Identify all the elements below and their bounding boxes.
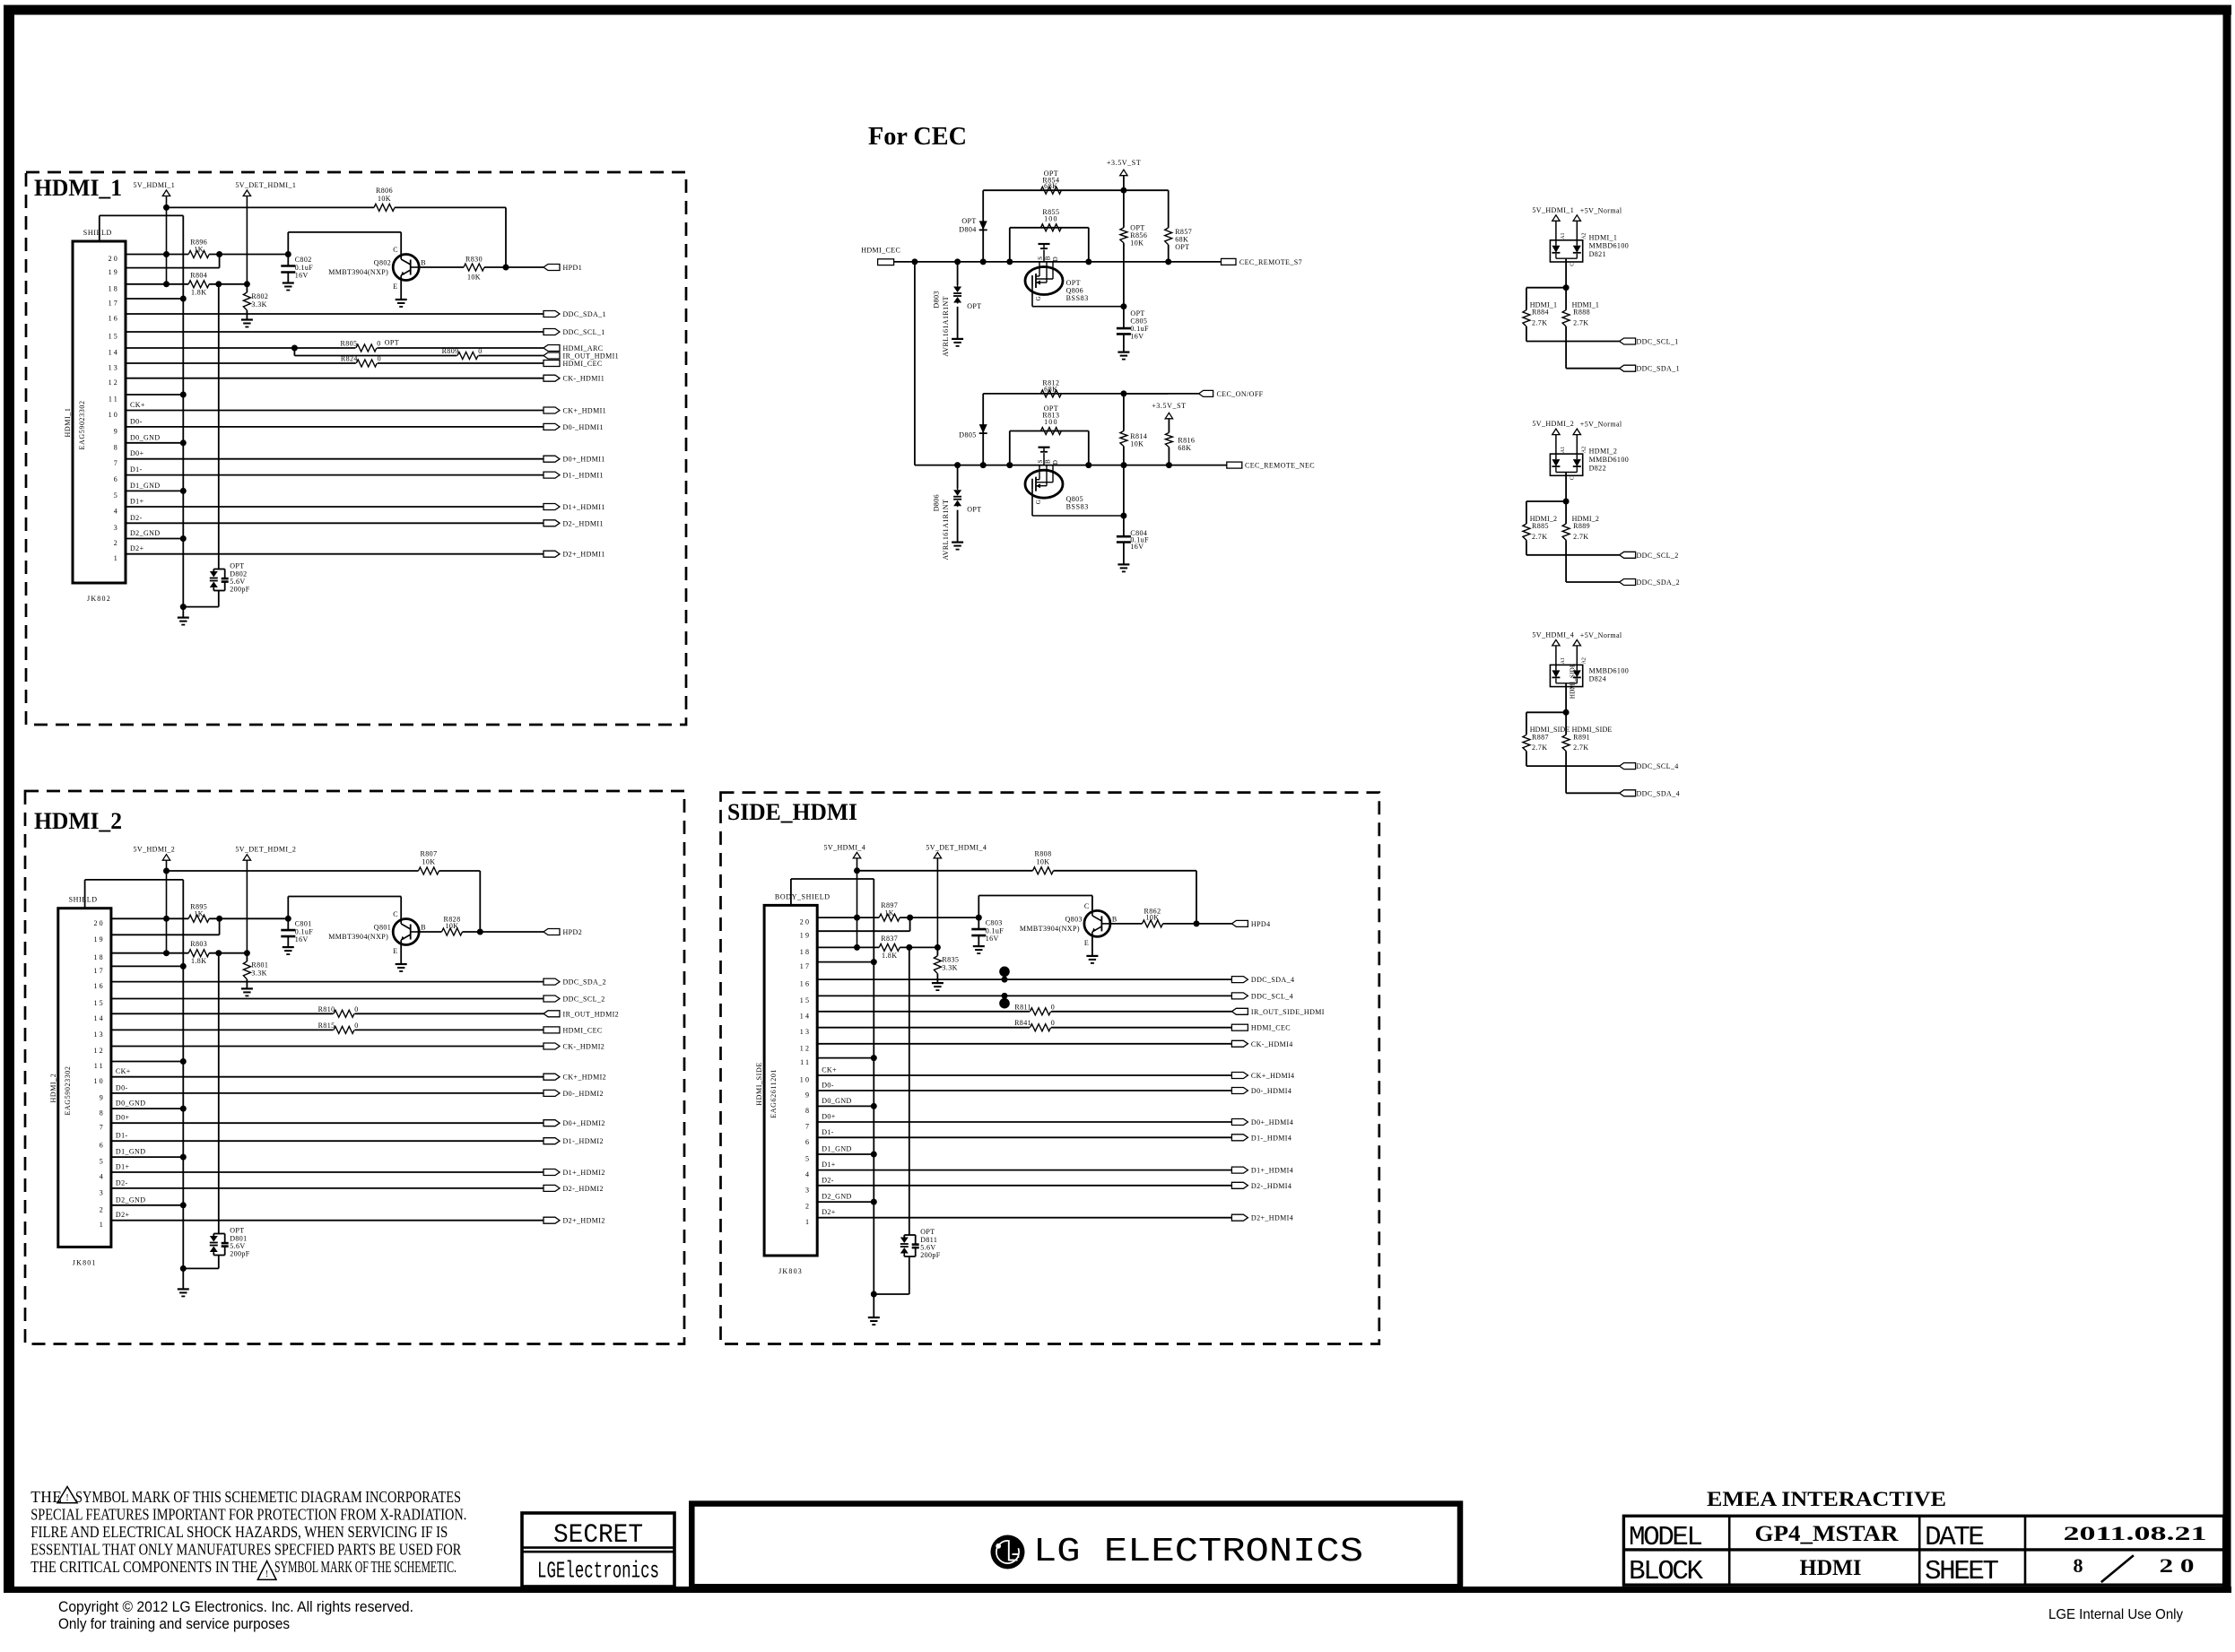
svg-text:5V_DET_HDMI_2: 5V_DET_HDMI_2 xyxy=(235,846,296,854)
svg-text:7: 7 xyxy=(100,1124,105,1132)
svg-text:4: 4 xyxy=(100,1173,105,1181)
svg-text:CEC_ON/OFF: CEC_ON/OFF xyxy=(1217,390,1264,398)
svg-text:D2-: D2- xyxy=(130,514,143,522)
svg-text:C803: C803 xyxy=(986,919,1003,927)
svg-text:18: 18 xyxy=(93,953,104,961)
svg-text:JK803: JK803 xyxy=(778,1267,803,1275)
svg-text:6: 6 xyxy=(805,1138,811,1146)
svg-text:EAG62611201: EAG62611201 xyxy=(770,1069,778,1118)
svg-text:3.3K: 3.3K xyxy=(251,300,266,309)
svg-text:0: 0 xyxy=(1051,1019,1055,1027)
svg-text:D803: D803 xyxy=(932,291,940,308)
svg-text:17: 17 xyxy=(109,300,119,308)
svg-text:FILRE AND ELECTRICAL SHOCK HAZ: FILRE AND ELECTRICAL SHOCK HAZARDS, WHEN… xyxy=(30,1523,448,1541)
svg-text:1K: 1K xyxy=(884,909,894,917)
svg-text:5V_HDMI_1: 5V_HDMI_1 xyxy=(134,181,176,189)
svg-text:EMEA INTERACTIVE: EMEA INTERACTIVE xyxy=(1707,1488,1946,1510)
svg-text:Q802: Q802 xyxy=(374,259,391,267)
svg-text:10K: 10K xyxy=(1146,914,1160,922)
svg-text:ESSENTIAL THAT ONLY MANUFATURE: ESSENTIAL THAT ONLY MANUFATURES SPECFIED… xyxy=(30,1541,461,1559)
svg-text:MMBD6100: MMBD6100 xyxy=(1589,666,1630,674)
svg-text:0: 0 xyxy=(354,1005,358,1013)
svg-text:D0+: D0+ xyxy=(130,449,144,457)
svg-text:R891: R891 xyxy=(1573,733,1590,741)
svg-text:19: 19 xyxy=(93,935,104,943)
svg-text:100: 100 xyxy=(1044,214,1058,222)
svg-text:D2_GND: D2_GND xyxy=(130,529,161,537)
svg-text:MMBD6100: MMBD6100 xyxy=(1589,456,1630,464)
svg-text:MMBD6100: MMBD6100 xyxy=(1589,242,1630,250)
svg-text:D1+: D1+ xyxy=(116,1163,130,1171)
svg-text:D1-: D1- xyxy=(116,1132,128,1140)
svg-text:MODEL: MODEL xyxy=(1629,1522,1701,1553)
svg-text:R888: R888 xyxy=(1573,309,1590,317)
svg-text:5V_DET_HDMI_1: 5V_DET_HDMI_1 xyxy=(235,181,296,189)
svg-text:OPT: OPT xyxy=(385,339,399,347)
svg-text:D811: D811 xyxy=(920,1236,937,1244)
svg-text:HPD2: HPD2 xyxy=(563,928,583,936)
svg-text:LG ELECTRONICS: LG ELECTRONICS xyxy=(1033,1533,1363,1571)
svg-text:5.6V: 5.6V xyxy=(230,1242,245,1250)
svg-text:DDC_SDA_2: DDC_SDA_2 xyxy=(1637,578,1681,587)
svg-text:D1-: D1- xyxy=(130,465,143,474)
svg-text:100: 100 xyxy=(1044,418,1058,426)
svg-text:D0-_HDMI2: D0-_HDMI2 xyxy=(563,1090,604,1098)
svg-text:CK+_HDMI1: CK+_HDMI1 xyxy=(563,407,607,415)
svg-text:1.8K: 1.8K xyxy=(882,952,897,960)
svg-text:G: G xyxy=(1035,296,1042,300)
svg-text:E: E xyxy=(1084,939,1089,947)
svg-text:5V_HDMI_2: 5V_HDMI_2 xyxy=(1532,420,1574,428)
svg-text:2.7K: 2.7K xyxy=(1532,319,1547,327)
svg-text:R885: R885 xyxy=(1532,522,1549,530)
svg-text:16: 16 xyxy=(800,980,811,988)
svg-text:5V_DET_HDMI_4: 5V_DET_HDMI_4 xyxy=(926,843,987,851)
svg-text:10: 10 xyxy=(93,1077,104,1085)
svg-text:3.3K: 3.3K xyxy=(251,969,266,978)
svg-text:D0-: D0- xyxy=(822,1082,834,1090)
svg-text:DDC_SDA_4: DDC_SDA_4 xyxy=(1637,789,1681,797)
svg-text:5V_HDMI_4: 5V_HDMI_4 xyxy=(1532,630,1574,639)
svg-text:+5V_Normal: +5V_Normal xyxy=(1580,421,1622,429)
svg-text:20: 20 xyxy=(93,919,104,927)
svg-text:EAG59023302: EAG59023302 xyxy=(64,1066,72,1116)
svg-text:R811: R811 xyxy=(1014,1003,1031,1011)
svg-text:9: 9 xyxy=(114,427,119,435)
svg-text:BODY_SHIELD: BODY_SHIELD xyxy=(775,892,831,900)
svg-text:D2-: D2- xyxy=(116,1178,128,1187)
svg-text:R824: R824 xyxy=(341,355,358,363)
svg-text:6: 6 xyxy=(100,1142,105,1150)
svg-text:2 0: 2 0 xyxy=(2160,1554,2195,1577)
svg-text:HDMI_CEC: HDMI_CEC xyxy=(861,246,900,254)
svg-text:13: 13 xyxy=(93,1030,104,1039)
svg-text:1: 1 xyxy=(805,1218,811,1226)
svg-text:CK+: CK+ xyxy=(822,1066,837,1074)
svg-text:5: 5 xyxy=(805,1155,811,1163)
svg-text:D1_GND: D1_GND xyxy=(822,1145,852,1153)
svg-text:D1-_HDMI1: D1-_HDMI1 xyxy=(563,472,604,480)
svg-text:19: 19 xyxy=(109,268,119,276)
svg-text:1: 1 xyxy=(100,1221,105,1229)
svg-text:16V: 16V xyxy=(295,935,309,943)
svg-text:R807: R807 xyxy=(421,850,438,858)
svg-text:R805: R805 xyxy=(340,340,357,348)
svg-text:R802: R802 xyxy=(251,292,268,300)
svg-text:2.7K: 2.7K xyxy=(1573,743,1588,752)
svg-text:5V_HDMI_4: 5V_HDMI_4 xyxy=(824,843,866,851)
svg-text:2.7K: 2.7K xyxy=(1573,319,1588,327)
svg-text:6: 6 xyxy=(114,475,119,483)
svg-text:+3.5V_ST: +3.5V_ST xyxy=(1152,402,1186,410)
svg-text:OPT: OPT xyxy=(967,302,981,310)
svg-text:4: 4 xyxy=(805,1170,811,1178)
svg-text:S: S xyxy=(1037,256,1044,260)
svg-text:D0_GND: D0_GND xyxy=(116,1100,146,1108)
svg-text:JK801: JK801 xyxy=(73,1258,97,1266)
svg-text:For CEC: For CEC xyxy=(868,123,967,151)
svg-text:2.7K: 2.7K xyxy=(1573,533,1588,541)
svg-text:68K: 68K xyxy=(1044,182,1058,190)
svg-text:D801: D801 xyxy=(230,1234,247,1242)
svg-text:SHEET: SHEET xyxy=(1925,1556,1998,1587)
svg-text:D2+_HDMI1: D2+_HDMI1 xyxy=(563,551,605,559)
svg-text:D0+_HDMI1: D0+_HDMI1 xyxy=(563,456,605,464)
svg-text:D0-: D0- xyxy=(116,1083,128,1091)
svg-text:HDMI_SIDE: HDMI_SIDE xyxy=(755,1062,763,1106)
svg-text:MMBT3904(NXP): MMBT3904(NXP) xyxy=(1020,925,1080,933)
svg-text:SIDE_HDMI: SIDE_HDMI xyxy=(727,799,857,825)
svg-text:D0-_HDMI1: D0-_HDMI1 xyxy=(563,423,604,431)
svg-text:R884: R884 xyxy=(1532,309,1549,317)
svg-text:0: 0 xyxy=(377,340,380,348)
svg-text:0: 0 xyxy=(1051,1003,1055,1011)
svg-text:13: 13 xyxy=(800,1028,811,1036)
svg-text:2011.08.21: 2011.08.21 xyxy=(2064,1522,2207,1544)
svg-text:HDMI_1: HDMI_1 xyxy=(1589,233,1618,241)
svg-text:LGE Internal Use Only: LGE Internal Use Only xyxy=(2048,1607,2183,1622)
svg-text:200pF: 200pF xyxy=(230,1250,250,1258)
svg-text:SHIELD: SHIELD xyxy=(83,229,112,237)
svg-text:BLOCK: BLOCK xyxy=(1629,1556,1703,1587)
svg-text:D: D xyxy=(1052,460,1059,465)
svg-text:10K: 10K xyxy=(422,858,436,866)
svg-text:10K: 10K xyxy=(1130,239,1144,248)
svg-text:R803: R803 xyxy=(190,940,207,948)
svg-text:R808: R808 xyxy=(1035,849,1052,857)
svg-text:DATE: DATE xyxy=(1925,1522,1983,1553)
svg-text:R889: R889 xyxy=(1573,522,1590,530)
svg-text:16: 16 xyxy=(109,315,119,323)
svg-text:13: 13 xyxy=(109,364,119,372)
svg-text:15: 15 xyxy=(800,996,811,1004)
svg-text:5V_HDMI_2: 5V_HDMI_2 xyxy=(134,846,176,854)
svg-text:C: C xyxy=(1084,902,1090,910)
svg-text:9: 9 xyxy=(100,1093,105,1101)
svg-text:C: C xyxy=(1570,476,1576,480)
svg-text:BSS83: BSS83 xyxy=(1066,502,1089,510)
svg-text:C: C xyxy=(393,246,398,254)
svg-text:D0+: D0+ xyxy=(822,1113,836,1121)
svg-text:HDMI_CEC: HDMI_CEC xyxy=(563,1026,603,1034)
svg-text:D0_GND: D0_GND xyxy=(822,1097,852,1105)
svg-text:DDC_SDA_1: DDC_SDA_1 xyxy=(1637,365,1681,373)
svg-text:D2-: D2- xyxy=(822,1176,834,1184)
svg-text:15: 15 xyxy=(93,999,104,1007)
svg-text:SYMBOL MARK OF THE SCHEMETIC.: SYMBOL MARK OF THE SCHEMETIC. xyxy=(274,1558,457,1576)
svg-text:S: S xyxy=(1037,460,1044,464)
svg-text:7: 7 xyxy=(114,459,119,467)
svg-text:2: 2 xyxy=(114,539,119,547)
svg-text:8: 8 xyxy=(100,1109,105,1117)
svg-text:HPD4: HPD4 xyxy=(1251,920,1271,928)
svg-text:E: E xyxy=(393,947,397,955)
svg-text:OPT: OPT xyxy=(1175,243,1189,251)
svg-text:MMBT3904(NXP): MMBT3904(NXP) xyxy=(328,933,388,941)
svg-text:D804: D804 xyxy=(959,226,976,234)
svg-text:R835: R835 xyxy=(942,955,959,963)
svg-text:D1+_HDMI1: D1+_HDMI1 xyxy=(563,503,605,511)
svg-text:10K: 10K xyxy=(1130,439,1144,448)
svg-text:CEC_REMOTE_NEC: CEC_REMOTE_NEC xyxy=(1245,462,1315,470)
svg-text:R806: R806 xyxy=(376,187,393,195)
svg-text:IR_OUT_HDMI2: IR_OUT_HDMI2 xyxy=(563,1010,620,1018)
svg-text:11: 11 xyxy=(800,1058,811,1066)
svg-text:D802: D802 xyxy=(230,570,247,578)
svg-text:B: B xyxy=(1045,256,1052,260)
svg-text:D822: D822 xyxy=(1589,464,1606,472)
svg-text:D0-_HDMI4: D0-_HDMI4 xyxy=(1251,1087,1291,1095)
svg-text:D2+: D2+ xyxy=(116,1211,130,1219)
svg-text:16V: 16V xyxy=(1130,332,1144,340)
svg-text:DDC_SCL_1: DDC_SCL_1 xyxy=(563,328,605,336)
svg-text:1: 1 xyxy=(114,554,119,562)
svg-text:+3.5V_ST: +3.5V_ST xyxy=(1107,159,1141,167)
svg-text:0: 0 xyxy=(478,347,482,355)
svg-text:HDMI_1: HDMI_1 xyxy=(64,408,72,438)
svg-text:DDC_SCL_4: DDC_SCL_4 xyxy=(1251,992,1293,1000)
svg-text:DDC_SCL_4: DDC_SCL_4 xyxy=(1637,762,1679,770)
svg-text:BSS83: BSS83 xyxy=(1066,294,1089,302)
svg-text:3: 3 xyxy=(114,524,119,532)
svg-text:5: 5 xyxy=(100,1158,105,1166)
svg-text:CK-_HDMI2: CK-_HDMI2 xyxy=(563,1043,605,1051)
svg-text:!: ! xyxy=(265,1569,268,1579)
svg-text:R841: R841 xyxy=(1014,1019,1031,1027)
svg-text:+5V_Normal: +5V_Normal xyxy=(1580,631,1622,639)
svg-text:16V: 16V xyxy=(986,935,999,943)
svg-text:D1_GND: D1_GND xyxy=(130,482,161,490)
svg-text:AVRL161A1R1NT: AVRL161A1R1NT xyxy=(942,500,950,561)
svg-text:R810: R810 xyxy=(318,1005,335,1013)
svg-text:10K: 10K xyxy=(1037,857,1050,865)
svg-text:HDMI: HDMI xyxy=(1800,1556,1862,1580)
svg-text:10K: 10K xyxy=(446,922,459,930)
svg-text:LGElectronics: LGElectronics xyxy=(537,1558,659,1585)
svg-text:D2+: D2+ xyxy=(130,544,144,552)
svg-text:CK+_HDMI4: CK+_HDMI4 xyxy=(1251,1072,1295,1080)
svg-text:R809: R809 xyxy=(442,347,459,355)
svg-text:17: 17 xyxy=(800,962,811,970)
svg-text:200pF: 200pF xyxy=(920,1251,941,1259)
svg-text:A1: A1 xyxy=(1561,447,1566,453)
svg-text:HDMI_CEC: HDMI_CEC xyxy=(563,360,603,368)
svg-text:D2_GND: D2_GND xyxy=(116,1196,146,1204)
svg-text:4: 4 xyxy=(114,508,119,516)
svg-text:D0+_HDMI4: D0+_HDMI4 xyxy=(1251,1118,1293,1126)
svg-text:D0-: D0- xyxy=(130,417,143,425)
svg-text:12: 12 xyxy=(109,378,119,387)
svg-text:14: 14 xyxy=(800,1012,811,1020)
svg-text:GP4_MSTAR: GP4_MSTAR xyxy=(1755,1522,1900,1546)
svg-text:CK-_HDMI1: CK-_HDMI1 xyxy=(563,375,605,383)
svg-text:11: 11 xyxy=(94,1062,105,1070)
svg-text:DDC_SDA_1: DDC_SDA_1 xyxy=(563,310,607,318)
svg-text:16: 16 xyxy=(93,982,104,990)
svg-text:B: B xyxy=(421,259,426,267)
svg-text:3: 3 xyxy=(100,1188,105,1196)
svg-text:DDC_SCL_2: DDC_SCL_2 xyxy=(1637,552,1679,560)
svg-text:D1+: D1+ xyxy=(130,498,144,506)
svg-text:Q803: Q803 xyxy=(1065,915,1083,923)
svg-text:DDC_SDA_4: DDC_SDA_4 xyxy=(1251,976,1295,984)
svg-text:SPECIAL FEATURES IMPORTANT FOR: SPECIAL FEATURES IMPORTANT FOR PROTECTIO… xyxy=(30,1506,466,1524)
svg-text:D2-_HDMI2: D2-_HDMI2 xyxy=(563,1185,604,1193)
svg-text:R830: R830 xyxy=(465,256,483,264)
svg-text:C802: C802 xyxy=(295,256,312,264)
svg-text:HDMI_CEC: HDMI_CEC xyxy=(1251,1024,1291,1032)
svg-text:CK+: CK+ xyxy=(116,1067,131,1075)
svg-text:11: 11 xyxy=(109,396,119,404)
svg-text:D0_GND: D0_GND xyxy=(130,433,161,441)
svg-text:D1+: D1+ xyxy=(822,1161,836,1169)
svg-text:EAG59023302: EAG59023302 xyxy=(78,400,86,449)
svg-text:D1-_HDMI2: D1-_HDMI2 xyxy=(563,1137,604,1145)
svg-text:E: E xyxy=(393,283,397,291)
svg-text:D: D xyxy=(1052,256,1059,261)
svg-text:D0+: D0+ xyxy=(116,1114,130,1122)
svg-text:1K: 1K xyxy=(194,910,204,918)
svg-text:A2: A2 xyxy=(1582,447,1587,453)
svg-text:Q801: Q801 xyxy=(374,924,391,932)
svg-text:5.6V: 5.6V xyxy=(230,578,245,586)
svg-text:B: B xyxy=(1045,459,1052,464)
svg-text:3: 3 xyxy=(805,1186,811,1194)
svg-text:D2-_HDMI4: D2-_HDMI4 xyxy=(1251,1182,1291,1190)
svg-text:D2+_HDMI4: D2+_HDMI4 xyxy=(1251,1214,1293,1222)
svg-text:HDMI_2: HDMI_2 xyxy=(1589,448,1618,456)
svg-text:D0+_HDMI2: D0+_HDMI2 xyxy=(563,1119,605,1127)
svg-text:HDMI_2: HDMI_2 xyxy=(34,808,122,834)
svg-text:OPT: OPT xyxy=(961,217,976,225)
svg-text:D2_GND: D2_GND xyxy=(822,1193,852,1201)
svg-text:D806: D806 xyxy=(932,494,940,511)
svg-text:Copyright © 2012 LG Electronic: Copyright © 2012 LG Electronics. Inc. Al… xyxy=(58,1599,413,1615)
svg-text:18: 18 xyxy=(109,284,119,292)
svg-text:DDC_SCL_2: DDC_SCL_2 xyxy=(563,996,605,1004)
svg-text:D2-_HDMI1: D2-_HDMI1 xyxy=(563,519,604,527)
svg-text:D821: D821 xyxy=(1589,250,1606,258)
svg-text:THE CRITICAL COMPONENTS IN THE: THE CRITICAL COMPONENTS IN THE xyxy=(30,1558,257,1576)
svg-text:1.8K: 1.8K xyxy=(191,957,206,965)
svg-text:10: 10 xyxy=(800,1076,811,1084)
svg-text:R887: R887 xyxy=(1532,733,1549,741)
svg-text:R815: R815 xyxy=(318,1022,335,1030)
svg-text:HDMI_2: HDMI_2 xyxy=(49,1074,57,1103)
svg-text:8: 8 xyxy=(805,1107,811,1115)
svg-text:+5V_Normal: +5V_Normal xyxy=(1580,206,1622,214)
svg-text:JK802: JK802 xyxy=(87,595,111,603)
svg-text:CK-_HDMI4: CK-_HDMI4 xyxy=(1251,1040,1293,1048)
svg-text:20: 20 xyxy=(800,918,811,926)
svg-text:C: C xyxy=(393,910,398,918)
svg-text:D805: D805 xyxy=(959,431,976,439)
svg-text:14: 14 xyxy=(109,349,119,357)
svg-text:17: 17 xyxy=(93,967,104,975)
svg-text:MMBT3904(NXP): MMBT3904(NXP) xyxy=(328,268,388,276)
svg-text:1.8K: 1.8K xyxy=(191,288,206,296)
svg-text:7: 7 xyxy=(805,1123,811,1131)
svg-text:!: ! xyxy=(65,1493,68,1503)
svg-text:9: 9 xyxy=(805,1091,811,1100)
svg-text:68K: 68K xyxy=(1178,444,1191,452)
svg-text:16V: 16V xyxy=(1130,543,1144,551)
svg-text:C801: C801 xyxy=(295,920,312,928)
svg-text:14: 14 xyxy=(93,1014,104,1022)
svg-text:CK+_HDMI2: CK+_HDMI2 xyxy=(563,1074,607,1082)
svg-text:CK+: CK+ xyxy=(130,401,145,409)
svg-text:D824: D824 xyxy=(1589,675,1606,683)
svg-text:R801: R801 xyxy=(251,961,268,969)
svg-text:HDMI_SIDE: HDMI_SIDE xyxy=(1570,664,1577,700)
svg-text:A2: A2 xyxy=(1582,657,1587,664)
svg-text:G: G xyxy=(1035,500,1042,504)
svg-text:R804: R804 xyxy=(190,271,207,279)
svg-text:B: B xyxy=(1112,915,1117,923)
svg-text:5: 5 xyxy=(114,491,119,500)
svg-text:10: 10 xyxy=(109,411,119,419)
svg-text:A1: A1 xyxy=(1561,232,1566,239)
svg-text:0: 0 xyxy=(354,1022,358,1030)
svg-text:DDC_SCL_1: DDC_SCL_1 xyxy=(1637,338,1679,346)
svg-text:IR_OUT_SIDE_HDMI: IR_OUT_SIDE_HDMI xyxy=(1251,1008,1325,1016)
svg-text:SHIELD: SHIELD xyxy=(69,896,98,904)
svg-text:A2: A2 xyxy=(1582,232,1587,239)
svg-text:B: B xyxy=(421,924,426,932)
svg-text:1K: 1K xyxy=(194,246,204,254)
svg-text:5.6V: 5.6V xyxy=(920,1244,935,1252)
svg-text:18: 18 xyxy=(800,948,811,956)
svg-text:SYMBOL MARK OF THIS SCHEMETIC: SYMBOL MARK OF THIS SCHEMETIC DIAGRAM IN… xyxy=(75,1488,461,1506)
svg-text:16V: 16V xyxy=(295,271,309,279)
svg-text:D1+_HDMI4: D1+_HDMI4 xyxy=(1251,1167,1293,1175)
svg-text:12: 12 xyxy=(800,1044,811,1052)
svg-text:8: 8 xyxy=(2074,1554,2083,1577)
svg-text:D1_GND: D1_GND xyxy=(116,1148,146,1156)
svg-text:0: 0 xyxy=(378,355,381,363)
svg-text:SECRET: SECRET xyxy=(553,1520,643,1551)
svg-text:8: 8 xyxy=(114,443,119,451)
svg-text:D1-: D1- xyxy=(822,1128,834,1136)
svg-text:200pF: 200pF xyxy=(230,586,250,594)
svg-text:D1-_HDMI4: D1-_HDMI4 xyxy=(1251,1134,1291,1142)
svg-text:15: 15 xyxy=(109,333,119,341)
svg-text:HPD1: HPD1 xyxy=(563,264,583,272)
svg-text:D2+: D2+ xyxy=(822,1208,836,1216)
svg-text:10K: 10K xyxy=(378,195,391,203)
svg-text:12: 12 xyxy=(93,1047,104,1055)
svg-text:10K: 10K xyxy=(467,274,481,282)
